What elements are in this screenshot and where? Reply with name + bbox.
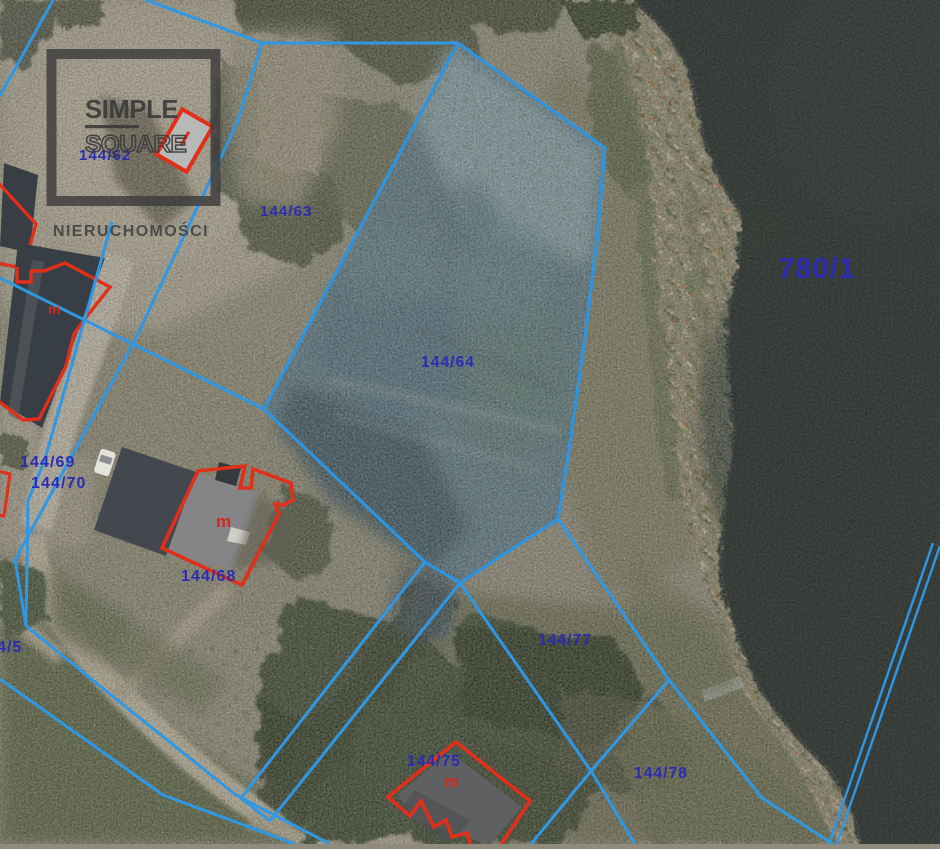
svg-text:144/64: 144/64 (421, 354, 475, 371)
svg-text:780/1: 780/1 (778, 253, 856, 285)
svg-text:4/5: 4/5 (0, 639, 23, 656)
svg-text:144/75: 144/75 (407, 753, 461, 770)
svg-text:m: m (216, 512, 231, 531)
svg-text:144/69: 144/69 (20, 454, 76, 471)
svg-text:144/68: 144/68 (181, 568, 237, 585)
svg-text:144/78: 144/78 (634, 765, 688, 782)
svg-text:m: m (444, 772, 459, 791)
svg-text:144/70: 144/70 (31, 475, 87, 492)
svg-text:NIERUCHOMOŚCI: NIERUCHOMOŚCI (53, 221, 209, 240)
svg-text:m: m (48, 301, 60, 317)
svg-text:SQUARE: SQUARE (85, 131, 186, 158)
svg-text:144/63: 144/63 (260, 203, 312, 220)
svg-text:144/77: 144/77 (538, 632, 592, 649)
svg-text:SIMPLE: SIMPLE (85, 96, 178, 124)
